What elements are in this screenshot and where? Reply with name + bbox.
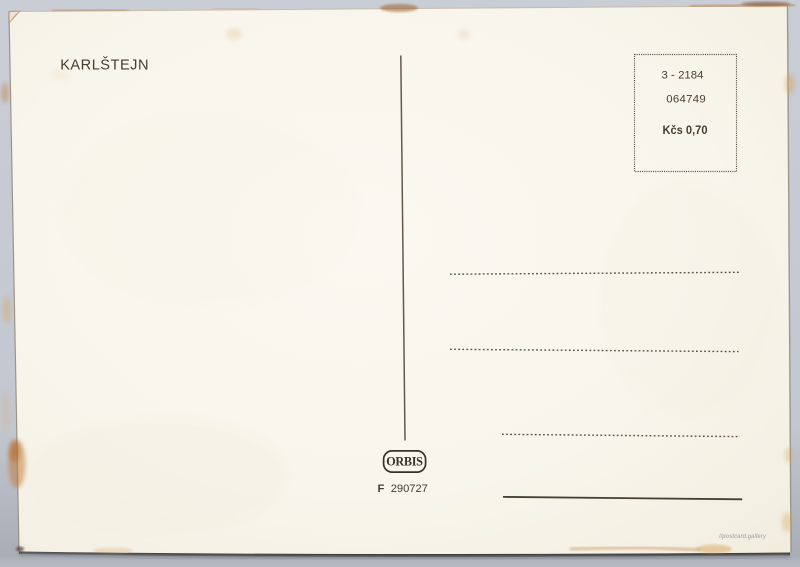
svg-text:064749: 064749 [666, 94, 706, 106]
svg-text:290727: 290727 [391, 483, 428, 495]
svg-text:ORBIS: ORBIS [386, 455, 423, 469]
svg-text://postcard.gallery: //postcard.gallery [718, 533, 766, 540]
svg-text:F: F [378, 483, 385, 495]
svg-text:3 - 2184: 3 - 2184 [662, 70, 704, 82]
svg-text:Kčs 0,70: Kčs 0,70 [663, 124, 708, 137]
svg-text:KARLŠTEJN: KARLŠTEJN [60, 57, 148, 74]
